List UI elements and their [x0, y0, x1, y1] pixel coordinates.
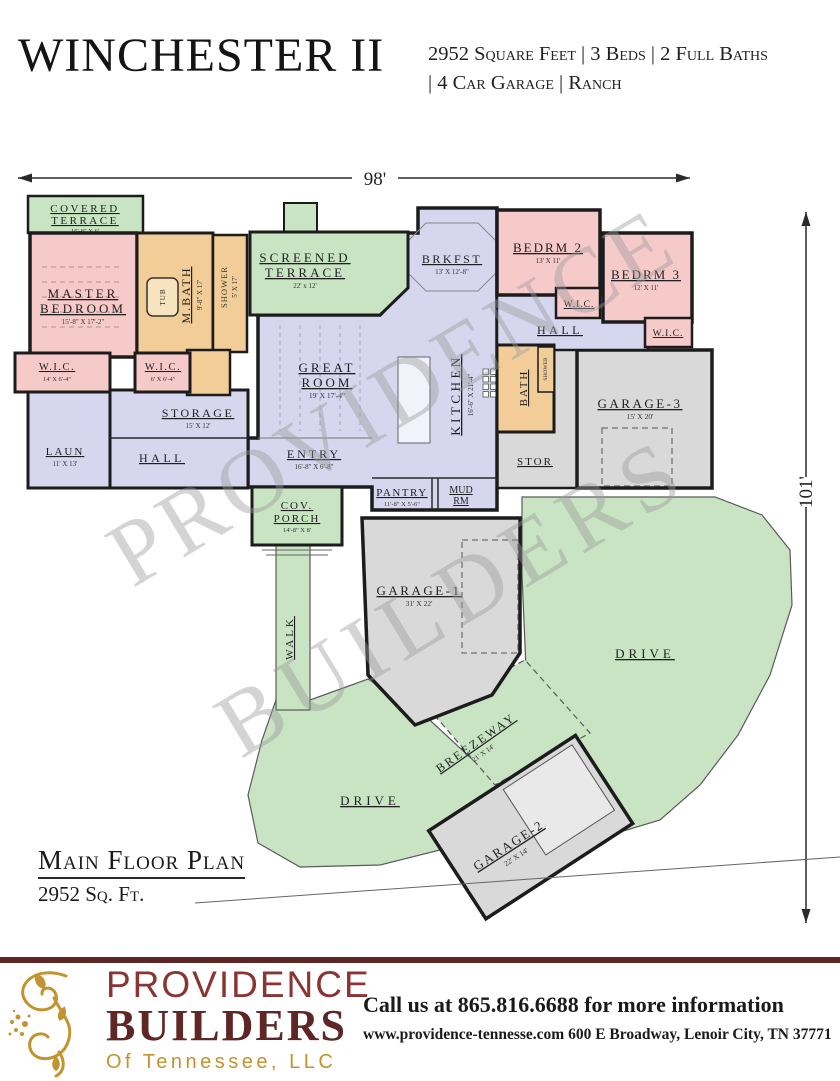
swirl-top	[23, 973, 66, 1010]
screened-terrace-label1: SCREENED	[259, 250, 350, 265]
contact-block: Call us at 865.816.6688 for more informa…	[363, 992, 832, 1044]
plan-specs: 2952 Square Feet | 3 Beds | 2 Full Baths…	[428, 40, 830, 98]
floor-plan-sheet: WINCHESTER II 2952 Square Feet | 3 Beds …	[0, 0, 840, 1081]
tub-label: TUB	[159, 289, 167, 306]
pantry-dims: 11'-8" X 5'-6"	[384, 501, 420, 508]
dimension-width	[18, 174, 690, 183]
brkfst-label: BRKFST	[422, 252, 482, 266]
plan-specs-line2: | 4 Car Garage | Ranch	[428, 69, 830, 98]
m-bath-dims: 9'-8" X 17'	[196, 280, 204, 310]
master-bedroom-label2: BEDROOM	[40, 301, 126, 316]
brkfst-dims: 13' X 12'-8"	[435, 268, 469, 276]
brand-name-top: PROVIDENCE	[106, 966, 371, 1003]
laundry-shape	[28, 390, 110, 488]
plan-specs-line1: 2952 Square Feet | 3 Beds | 2 Full Baths	[428, 40, 830, 69]
master-bedroom-label1: MASTER	[48, 286, 119, 301]
dimension-height	[802, 212, 811, 923]
pantry-label: PANTRY	[376, 487, 427, 499]
shower-master-label: SHOWER	[219, 266, 229, 308]
mud-rm-label2: RM	[453, 496, 469, 507]
toilet-room-shape	[187, 350, 230, 395]
brand-block: PROVIDENCE BUILDERS Of Tennessee, LLC	[106, 966, 371, 1072]
wic-master-1-label: W.I.C.	[39, 362, 75, 373]
terrace-bump	[284, 203, 317, 233]
garage-3-label: GARAGE-3	[598, 396, 683, 411]
room-master-suite: MASTER BEDROOM 15'-8" X 17'-2" M.BATH 9'…	[15, 233, 247, 395]
storage-dims: 15' X 12'	[185, 422, 210, 430]
mud-rm-label1: MUD	[449, 485, 472, 496]
dimension-height-value: 101'	[796, 476, 817, 508]
drive-left-label: DRIVE	[340, 793, 400, 808]
contact-phone-line: Call us at 865.816.6688 for more informa…	[363, 992, 832, 1018]
master-bedroom-dims: 15'-8" X 17'-2"	[62, 318, 105, 326]
covered-terrace-label1: COVERED	[50, 203, 119, 215]
shower-master-dims: 5' X 17'	[231, 276, 239, 298]
brand-logo-swirl	[4, 964, 104, 1079]
cov-porch-dims: 14'-8" X 8'	[283, 527, 311, 534]
plan-label-subtitle: 2952 Sq. Ft.	[38, 882, 245, 907]
floor-plan-drawing: GARAGE-2 22' X 14' GARAGE-1 31' X 22' GA…	[0, 155, 840, 957]
m-bath-label: M.BATH	[179, 266, 193, 323]
wic-master-1-dims: 14' X 6'-4"	[43, 376, 71, 383]
plan-label-title: Main Floor Plan	[38, 845, 245, 879]
stor-label: STOR	[517, 456, 553, 468]
laundry-dims: 11' X 13'	[53, 460, 78, 468]
screened-terrace-label2: TERRACE	[265, 265, 345, 280]
contact-address-line: www.providence-tennesse.com 600 E Broadw…	[363, 1026, 832, 1044]
plan-label: Main Floor Plan 2952 Sq. Ft.	[38, 845, 245, 907]
covered-terrace-label2: TERRACE	[51, 215, 119, 227]
footer-divider-bar	[0, 957, 840, 963]
drive-right-label: DRIVE	[615, 646, 675, 661]
laundry-label: LAUN	[46, 446, 85, 458]
wic-master-2-label: W.I.C.	[145, 362, 181, 373]
hall-left-label: HALL	[139, 451, 185, 465]
brand-name-sub: Of Tennessee, LLC	[106, 1052, 371, 1072]
dimension-width-value: 98'	[364, 169, 386, 190]
swirl-dots	[9, 1010, 31, 1036]
screened-terrace-dims: 22' x 12'	[293, 282, 317, 290]
brand-name-main: BUILDERS	[106, 1004, 371, 1048]
wic-master-2-dims: 6' X 6'-4"	[151, 376, 176, 383]
page-title: WINCHESTER II	[18, 28, 384, 83]
storage-label: STORAGE	[162, 406, 235, 420]
wic-bedrm-3-label: W.I.C.	[653, 329, 684, 339]
